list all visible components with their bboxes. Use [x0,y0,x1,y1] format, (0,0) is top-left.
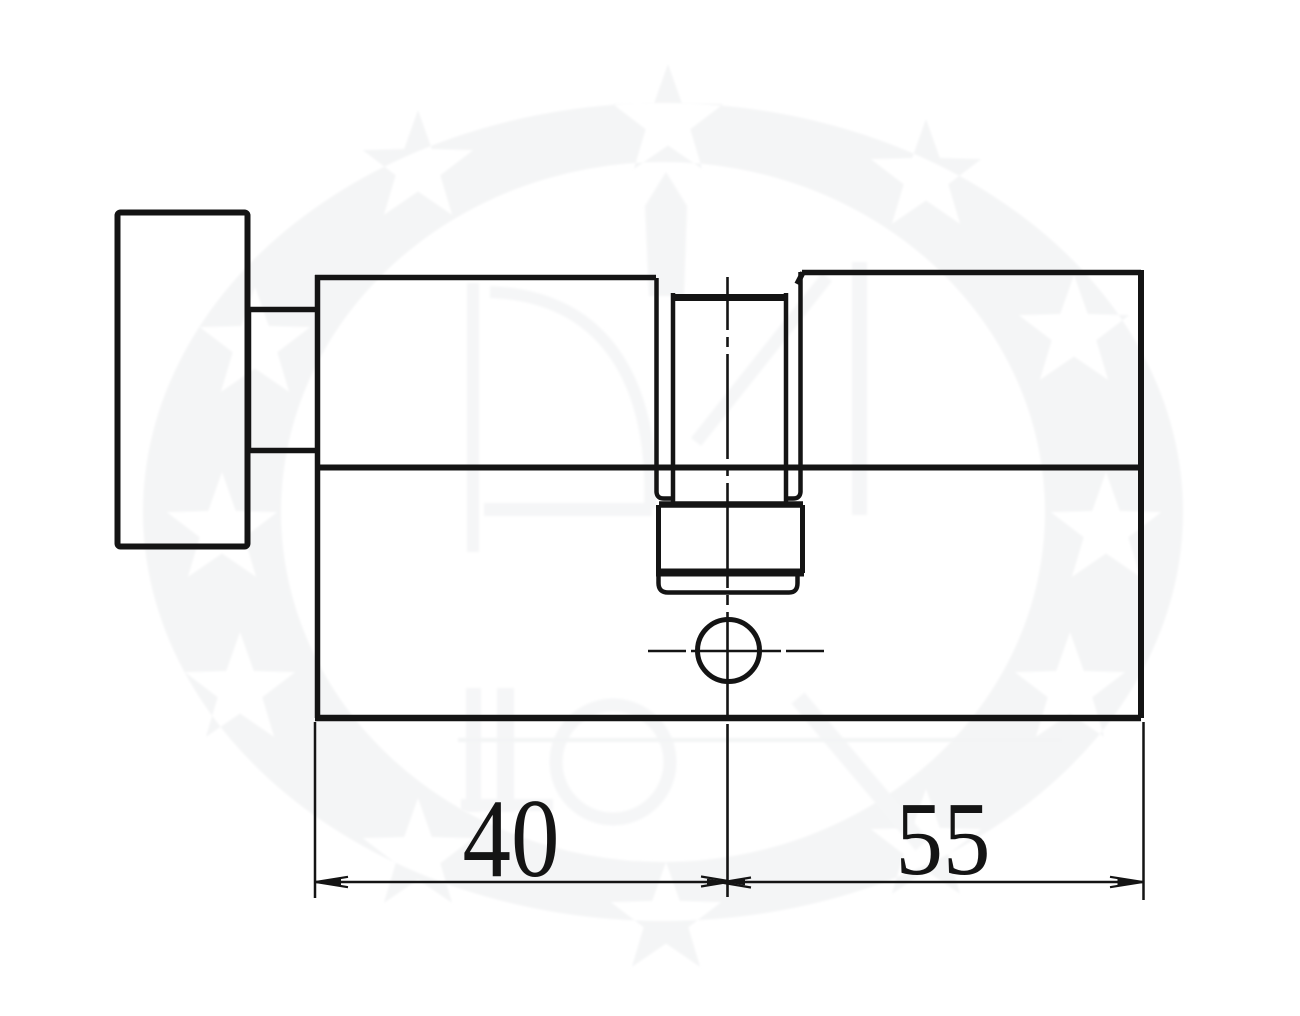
svg-text:55: 55 [896,780,991,897]
svg-text:40: 40 [463,777,560,901]
